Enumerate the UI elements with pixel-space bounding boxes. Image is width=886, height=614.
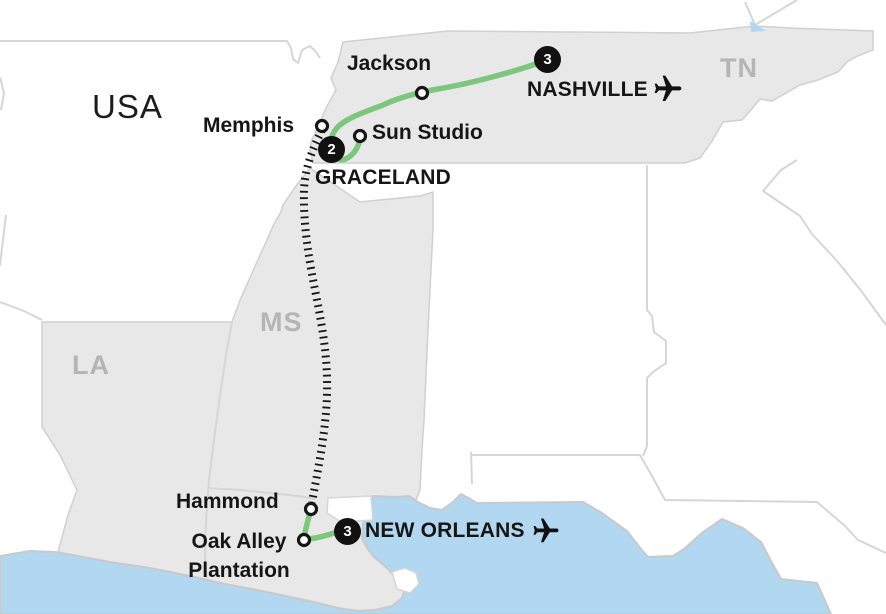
airplane-icon-new-orleans bbox=[531, 516, 561, 551]
sight-label-oak-alley-line2: Plantation bbox=[168, 556, 310, 585]
stop-circle-hammond bbox=[306, 504, 317, 515]
state-label-la: LA bbox=[72, 350, 110, 381]
city-label-memphis: Memphis bbox=[203, 114, 294, 138]
night-count-badge-graceland: 2 bbox=[318, 136, 345, 163]
tour-route-map: USA TN MS LA Jackson NASHVILLE Memphis S… bbox=[0, 0, 886, 614]
city-label-jackson: Jackson bbox=[347, 52, 431, 76]
city-label-new-orleans: NEW ORLEANS bbox=[365, 519, 525, 543]
airplane-icon-nashville bbox=[652, 73, 684, 110]
night-count-badge-nashville: 3 bbox=[534, 46, 561, 73]
night-count-badge-new-orleans: 3 bbox=[334, 518, 361, 545]
stop-circle-memphis bbox=[317, 121, 328, 132]
country-label-usa: USA bbox=[92, 88, 163, 126]
sight-label-oak-alley-line1: Oak Alley bbox=[168, 527, 310, 556]
sight-label-graceland: GRACELAND bbox=[315, 166, 451, 190]
sight-label-sun-studio: Sun Studio bbox=[372, 121, 483, 145]
city-label-hammond: Hammond bbox=[176, 490, 279, 514]
stop-circle-jackson bbox=[417, 88, 428, 99]
city-label-nashville: NASHVILLE bbox=[527, 78, 648, 102]
sight-label-oak-alley-plantation: Oak Alley Plantation bbox=[168, 527, 310, 585]
state-label-ms: MS bbox=[260, 307, 303, 338]
state-label-tn: TN bbox=[720, 53, 758, 84]
stop-circle-sun-studio bbox=[355, 131, 366, 142]
